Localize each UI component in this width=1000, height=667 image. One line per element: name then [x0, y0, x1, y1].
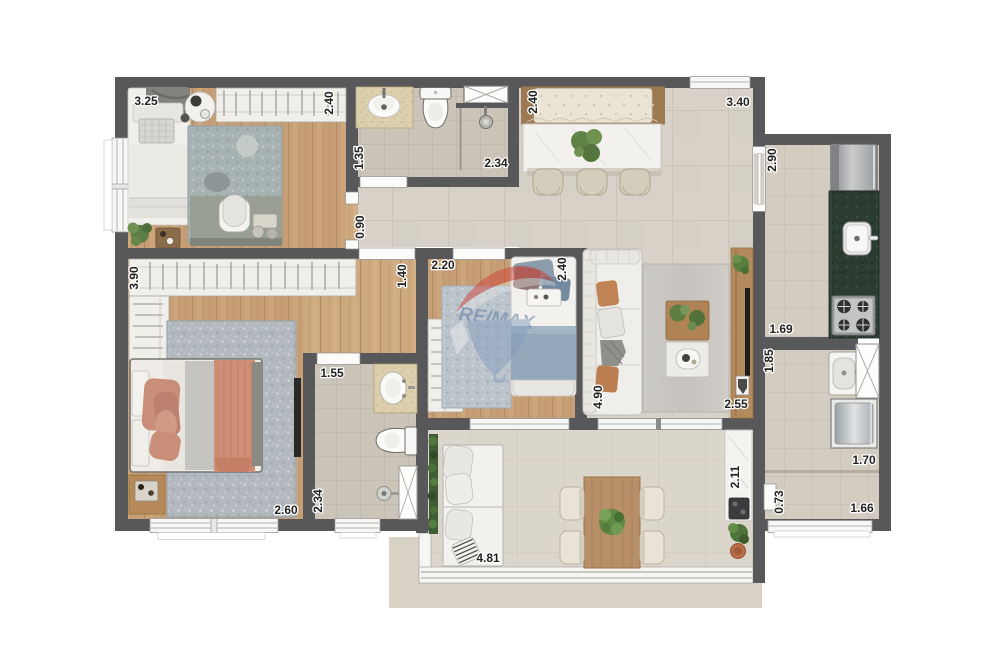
svg-text:4.90: 4.90	[591, 385, 605, 409]
svg-text:3.90: 3.90	[127, 266, 141, 290]
svg-text:1.85: 1.85	[762, 349, 776, 373]
svg-text:2.11: 2.11	[728, 465, 742, 488]
svg-text:2.40: 2.40	[322, 91, 336, 115]
svg-text:1.69: 1.69	[769, 322, 793, 336]
svg-text:4.81: 4.81	[476, 551, 500, 565]
svg-text:2.55: 2.55	[724, 397, 748, 411]
svg-text:1.66: 1.66	[850, 501, 874, 515]
svg-text:2.34: 2.34	[311, 489, 325, 513]
svg-text:1.35: 1.35	[352, 146, 366, 170]
svg-text:2.20: 2.20	[431, 258, 455, 272]
svg-text:1.55: 1.55	[320, 366, 344, 380]
svg-text:2.34: 2.34	[484, 156, 508, 170]
svg-text:0.90: 0.90	[353, 215, 367, 239]
svg-text:2.40: 2.40	[526, 90, 540, 114]
svg-text:2.90: 2.90	[765, 148, 779, 172]
svg-text:3.40: 3.40	[726, 95, 750, 109]
svg-text:3.25: 3.25	[134, 94, 158, 108]
svg-text:1.40: 1.40	[395, 264, 409, 288]
svg-text:2.40: 2.40	[555, 257, 569, 281]
svg-text:1.70: 1.70	[852, 453, 876, 467]
svg-text:0.73: 0.73	[772, 490, 786, 514]
svg-text:2.60: 2.60	[274, 503, 298, 517]
